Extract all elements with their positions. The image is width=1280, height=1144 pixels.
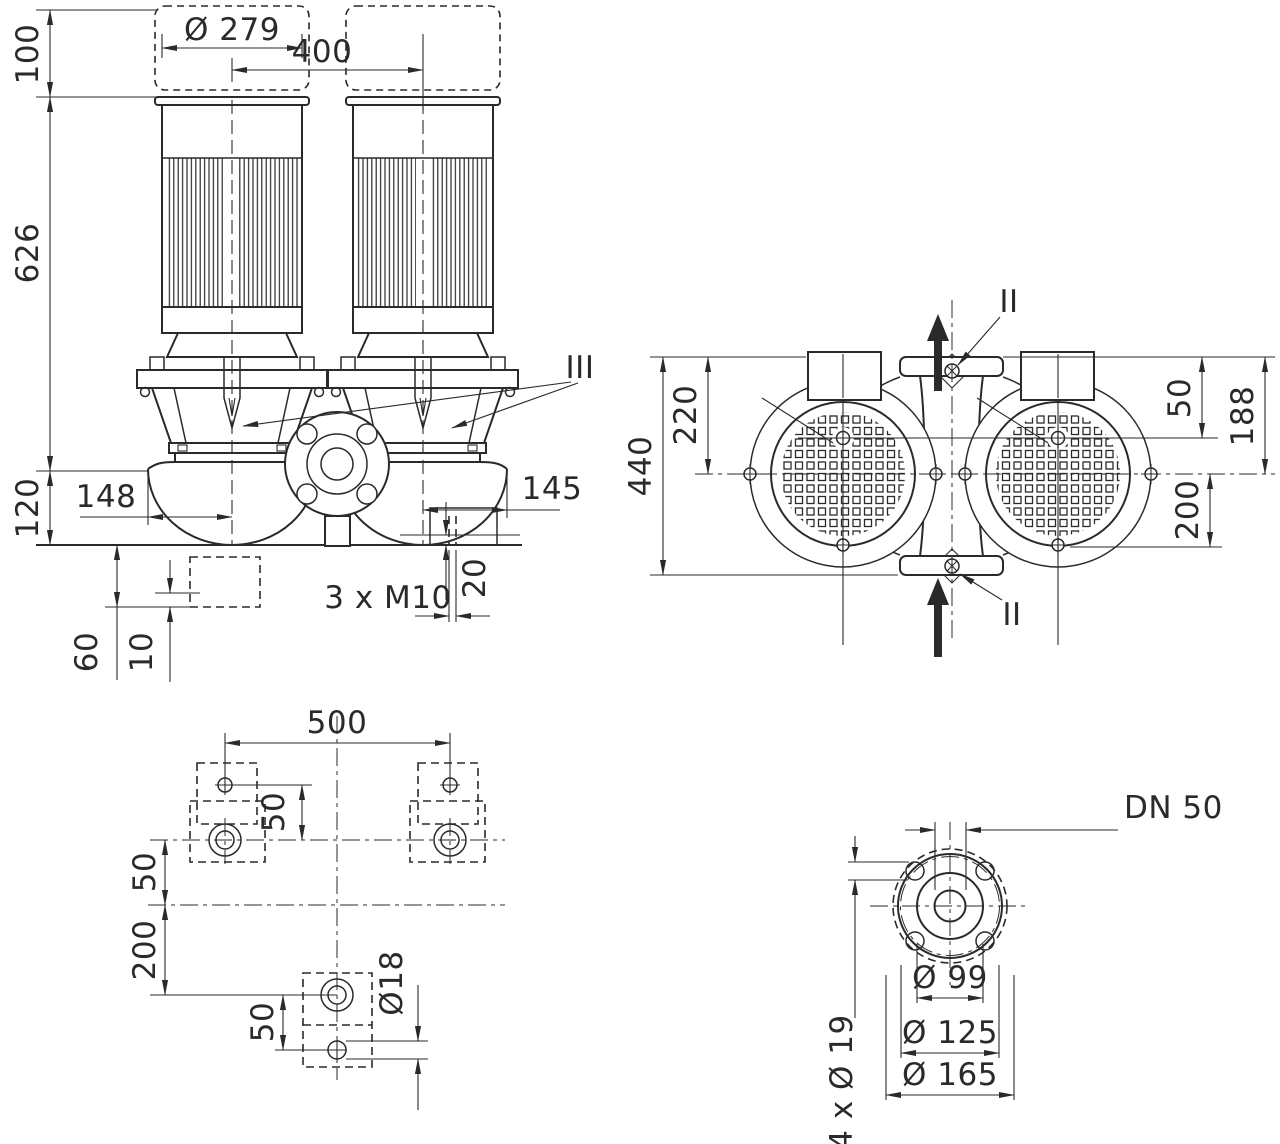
dim-label-50-top: 50 xyxy=(1162,378,1198,418)
dim-label-dia99: Ø 99 xyxy=(912,960,988,996)
dim-label-10: 10 xyxy=(124,632,160,672)
dim-label-188: 188 xyxy=(1225,386,1261,447)
dim-label-dia279: Ø 279 xyxy=(184,12,280,48)
dim-bottom-50: 50 xyxy=(245,995,330,1050)
flange-detail-view: DN 50 Ø 99 Ø 125 Ø 165 xyxy=(824,790,1223,1144)
foundation-plan-view: 500 50 xyxy=(127,705,505,1110)
dim-bolt-holes: 4 x Ø 19 xyxy=(824,836,909,1144)
dim-label-626: 626 xyxy=(10,223,46,284)
pad-left xyxy=(190,757,265,864)
dim-label-120: 120 xyxy=(10,478,46,539)
motor-fins xyxy=(430,158,489,307)
dim-label-dia165: Ø 165 xyxy=(902,1057,998,1093)
pump-dimensional-drawing: 100 626 120 Ø 279 400 148 xyxy=(0,0,1280,1144)
flow-arrow-bottom xyxy=(927,578,949,657)
dim-220: 220 xyxy=(668,357,708,474)
right-foot xyxy=(400,508,522,545)
terminal-box-right xyxy=(1021,352,1094,400)
foundation-pocket xyxy=(190,557,260,607)
pad-right xyxy=(410,757,485,864)
dim-label-148: 148 xyxy=(76,479,137,515)
dim-dia279: Ø 279 xyxy=(162,12,302,58)
dim-label-220: 220 xyxy=(668,385,704,446)
dim-200-top: 200 xyxy=(1170,474,1210,547)
dim-label-145: 145 xyxy=(522,471,583,507)
label-III: III xyxy=(566,350,595,386)
label-II-top: II xyxy=(999,284,1018,320)
dim-label-dia18: Ø18 xyxy=(374,950,410,1015)
plug-callout-bottom: II xyxy=(960,574,1022,633)
dim-20: 20 xyxy=(446,502,493,600)
motor-fins xyxy=(357,158,416,307)
dim-label-bolt-holes: 4 x Ø 19 xyxy=(824,1014,860,1144)
dim-label-m10: 3 x M10 xyxy=(324,580,451,616)
dim-188: 188 xyxy=(1225,357,1265,474)
dim-left-200: 200 xyxy=(127,905,337,995)
bolt-hole xyxy=(906,932,924,950)
dim-label-200-top: 200 xyxy=(1170,480,1206,541)
front-view: 100 626 120 Ø 279 400 148 xyxy=(10,6,594,682)
discharge-flange xyxy=(285,412,389,546)
plug-callout-top: II xyxy=(958,284,1019,365)
dim-label-left-50: 50 xyxy=(127,852,163,892)
dim-pad-50: 50 xyxy=(233,785,312,840)
motor-fins xyxy=(239,158,298,307)
dim-label-100: 100 xyxy=(10,24,46,85)
dim-dia18: Ø18 xyxy=(346,950,428,1110)
terminal-box-left xyxy=(808,352,881,400)
dim-chain-left: 100 626 120 xyxy=(10,10,160,545)
dim-label-60: 60 xyxy=(69,632,105,672)
dim-left-50: 50 xyxy=(127,840,165,905)
dim-label-20: 20 xyxy=(457,558,493,598)
dim-label-dia125: Ø 125 xyxy=(902,1015,998,1051)
dim-label-pad-50: 50 xyxy=(256,792,292,832)
dim-dn50: DN 50 xyxy=(905,790,1223,890)
dim-label-dn50: DN 50 xyxy=(1124,790,1223,826)
dim-label-left-200: 200 xyxy=(127,920,163,981)
dim-label-400: 400 xyxy=(292,34,353,70)
dim-label-440: 440 xyxy=(623,436,659,497)
dim-label-bottom-50: 50 xyxy=(245,1002,281,1042)
label-II-bottom: II xyxy=(1002,597,1021,633)
flow-arrow-top xyxy=(927,314,949,391)
motor-fins xyxy=(166,158,225,307)
drawing-page: 100 626 120 Ø 279 400 148 xyxy=(0,0,1280,1144)
dim-60-10: 60 10 xyxy=(69,545,200,682)
dim-label-500: 500 xyxy=(307,705,368,741)
top-view: 440 220 50 188 200 II II xyxy=(623,284,1275,657)
